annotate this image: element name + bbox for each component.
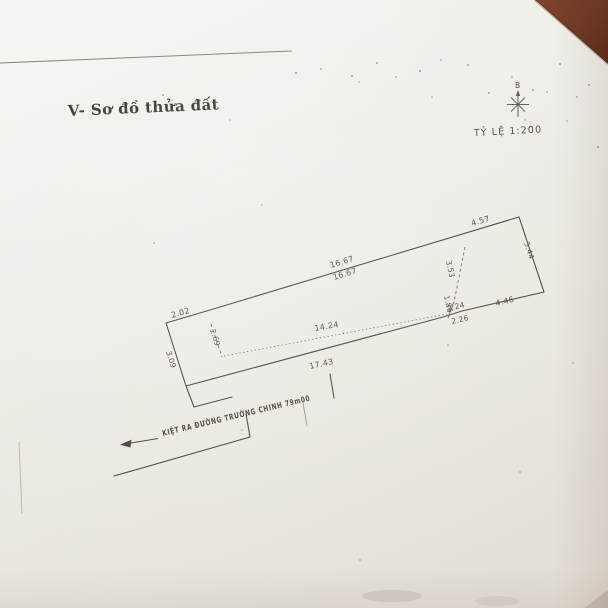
dim-step-inner: 2.26	[450, 313, 469, 326]
paper-smudges	[19, 442, 608, 608]
parcel-outline	[166, 217, 544, 386]
alley-boundary-lines	[114, 374, 334, 476]
table-corner	[535, 0, 608, 65]
north-label: B	[515, 81, 520, 90]
north-compass-icon	[507, 90, 529, 117]
dim-right-depth: 3.53	[444, 260, 456, 279]
dim-bottom-right-segment: 4.46	[494, 295, 515, 308]
dim-top-right-segment: 4.57	[470, 214, 491, 228]
dim-top-left-segment: 2.02	[170, 306, 191, 320]
parcel-sketch: V- Sơ đồ thửa đất B TỶ LỆ 1:200 2.02 16.…	[0, 0, 608, 608]
dim-right-edge: 5.44	[522, 241, 536, 260]
page-rule-line	[0, 51, 292, 63]
alley-annotation: KIỆT RA ĐƯỜNG TRƯỜNG CHINH 79m00	[120, 392, 311, 448]
dim-bottom-edge: 17.43	[309, 357, 335, 371]
document-photo: V- Sơ đồ thửa đất B TỶ LỆ 1:200 2.02 16.…	[0, 0, 608, 608]
dim-inner-width: 14.24	[314, 320, 340, 333]
dim-left-depth: 2.69	[208, 328, 222, 347]
section-title: V- Sơ đồ thửa đất	[66, 95, 219, 120]
alley-label: KIỆT RA ĐƯỜNG TRƯỜNG CHINH 79m00	[161, 392, 311, 438]
scale-label: TỶ LỆ 1:200	[473, 123, 543, 139]
dimension-labels: 2.02 16.67 16.67 4.57 5.44 3.53 1.86 2.2…	[164, 214, 536, 371]
left-arrow-icon	[120, 439, 158, 448]
